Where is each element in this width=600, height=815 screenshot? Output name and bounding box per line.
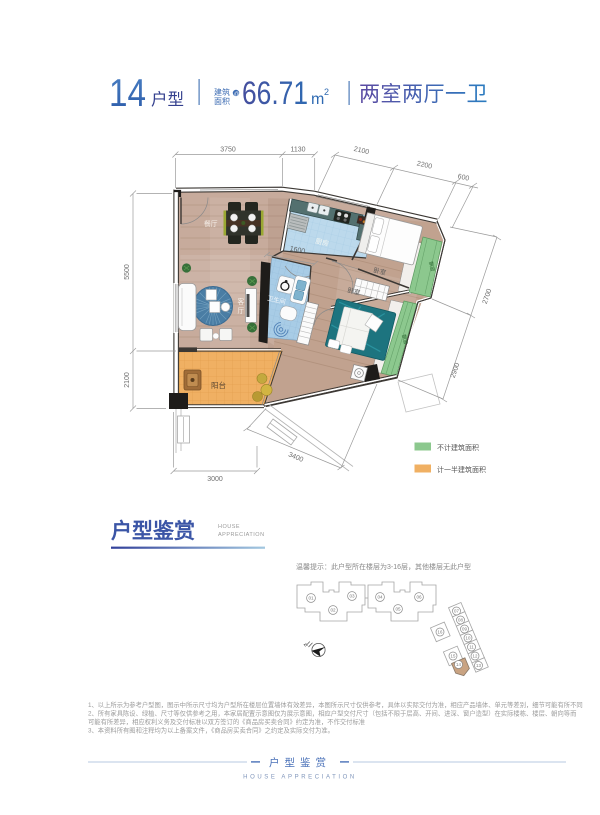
svg-text:14: 14	[109, 72, 146, 115]
svg-text:建筑: 建筑	[214, 87, 230, 97]
svg-text:14: 14	[456, 662, 461, 667]
svg-text:03: 03	[349, 594, 355, 599]
svg-text:3000: 3000	[207, 476, 223, 483]
svg-text:1130: 1130	[290, 147, 305, 154]
svg-text:厅: 厅	[238, 307, 245, 315]
svg-text:15: 15	[451, 654, 456, 659]
svg-text:餐厅: 餐厅	[204, 219, 218, 228]
svg-text:08: 08	[458, 618, 463, 623]
svg-text:可能有所差异，相应权利义务及交付标准以双方签订的《商品房买卖: 可能有所差异，相应权利义务及交付标准以双方签订的《商品房买卖合同》约定为准，不作…	[88, 717, 365, 726]
svg-text:HOUSE APPRECIATION: HOUSE APPRECIATION	[243, 775, 357, 781]
svg-text:05: 05	[395, 607, 401, 612]
svg-text:3、本资料所有图和注释均为以上备案文件，《商品房买卖合同》之: 3、本资料所有图和注释均为以上备案文件，《商品房买卖合同》之约定及实际交付为准。	[88, 726, 334, 735]
svg-text:@: @	[234, 92, 239, 98]
svg-text:13: 13	[476, 663, 481, 668]
svg-text:2: 2	[324, 87, 329, 97]
svg-text:11: 11	[469, 645, 474, 650]
svg-text:两室两厅一卫: 两室两厅一卫	[359, 83, 488, 106]
svg-text:66.71: 66.71	[242, 75, 308, 111]
svg-text:APPRECIATION: APPRECIATION	[218, 532, 265, 538]
svg-text:户型: 户型	[151, 90, 184, 109]
svg-text:阳台: 阳台	[211, 380, 226, 390]
svg-text:户型鉴赏: 户型鉴赏	[111, 519, 195, 543]
svg-text:01: 01	[308, 596, 314, 601]
svg-text:12: 12	[473, 654, 478, 659]
svg-text:02: 02	[330, 608, 336, 613]
svg-text:m: m	[311, 91, 324, 108]
svg-text:客: 客	[238, 297, 245, 306]
svg-text:温馨提示：此户型所在楼层为3-16层，其他楼层无此户型: 温馨提示：此户型所在楼层为3-16层，其他楼层无此户型	[296, 562, 471, 571]
svg-text:09: 09	[462, 627, 467, 632]
svg-text:HOUSE: HOUSE	[218, 524, 240, 530]
svg-text:不计建筑面积: 不计建筑面积	[437, 443, 479, 452]
svg-text:2、所有家具陈设、绿植、尺寸等仅供参考之用，本家居配置示意图: 2、所有家具陈设、绿植、尺寸等仅供参考之用，本家居配置示意图仅为展示意图，相应户…	[88, 709, 576, 718]
svg-text:3750: 3750	[220, 147, 236, 154]
svg-text:计一半建筑面积: 计一半建筑面积	[437, 465, 486, 474]
svg-text:户型鉴赏: 户型鉴赏	[269, 756, 331, 769]
svg-text:面积: 面积	[214, 96, 230, 106]
svg-text:06: 06	[416, 595, 422, 600]
svg-text:1、以上所示为参考户型图，图示中所示尺寸均为户型所在楼层位置: 1、以上所示为参考户型图，图示中所示尺寸均为户型所在楼层位置墙体有效差异，本图所…	[88, 700, 583, 709]
svg-text:07: 07	[454, 609, 459, 614]
svg-text:16: 16	[438, 630, 443, 635]
svg-text:10: 10	[466, 636, 471, 641]
svg-text:2100: 2100	[124, 372, 131, 388]
svg-text:5500: 5500	[124, 264, 131, 280]
svg-text:04: 04	[377, 595, 383, 600]
